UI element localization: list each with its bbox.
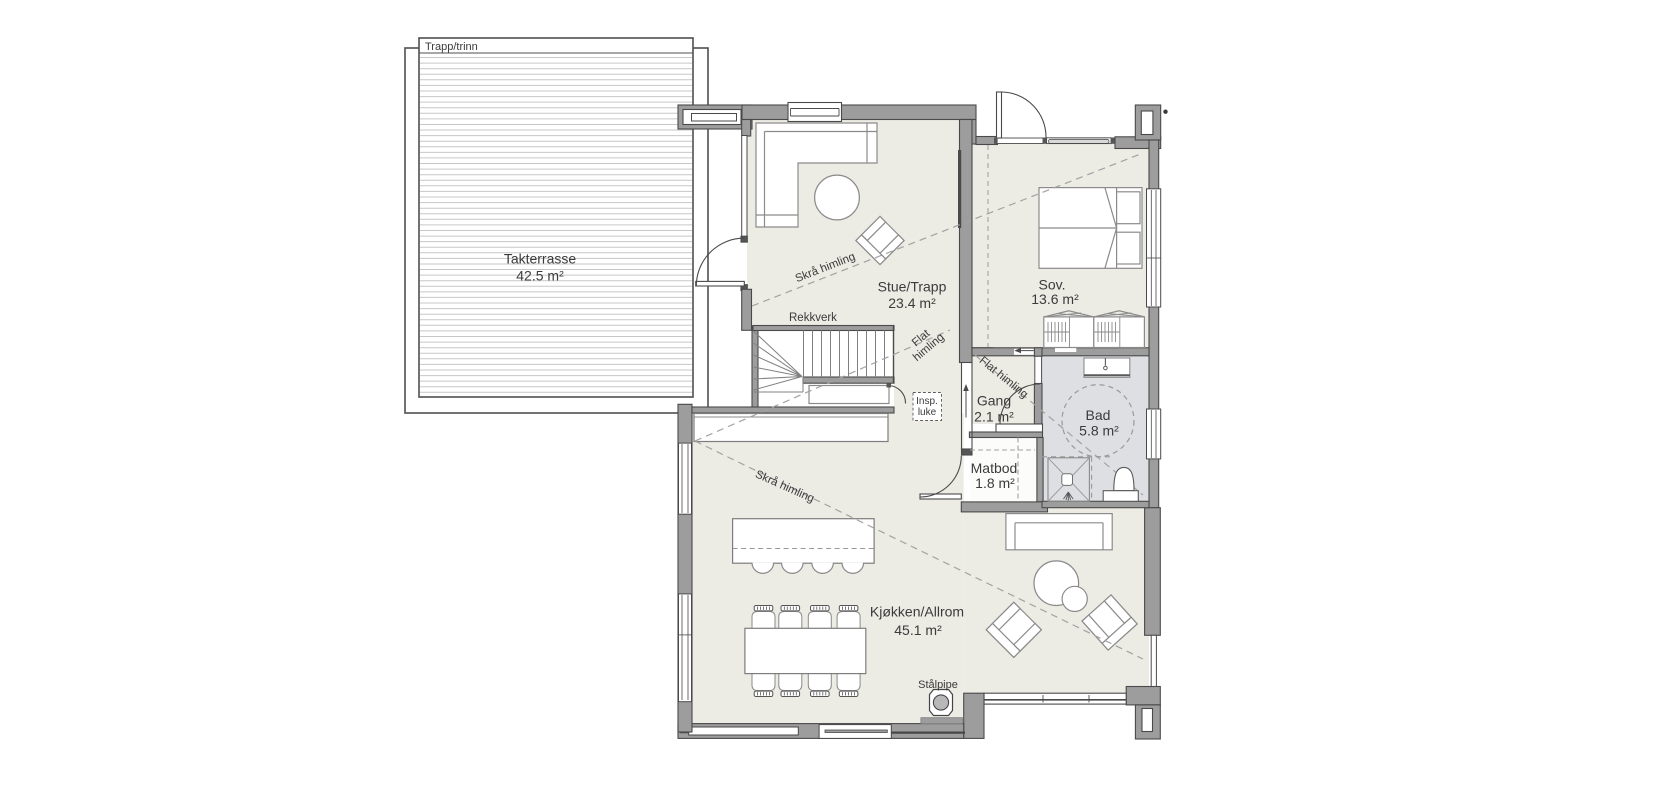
svg-text:Kjøkken/Allrom: Kjøkken/Allrom	[870, 604, 964, 620]
svg-text:Trapp/trinn: Trapp/trinn	[425, 41, 478, 53]
svg-text:2.1 m²: 2.1 m²	[974, 409, 1014, 425]
svg-text:13.6 m²: 13.6 m²	[1031, 291, 1079, 307]
svg-text:Stålpipe: Stålpipe	[918, 679, 958, 691]
svg-text:5.8 m²: 5.8 m²	[1079, 423, 1119, 439]
svg-text:Bad: Bad	[1086, 407, 1111, 423]
svg-text:Gang: Gang	[977, 393, 1011, 409]
svg-text:Insp.: Insp.	[916, 396, 938, 407]
svg-text:23.4 m²: 23.4 m²	[888, 295, 936, 311]
svg-text:42.5 m²: 42.5 m²	[516, 268, 564, 284]
svg-text:Rekkverk: Rekkverk	[789, 312, 837, 324]
svg-text:Stue/Trapp: Stue/Trapp	[878, 279, 947, 295]
svg-text:Matbod: Matbod	[971, 460, 1018, 476]
svg-text:45.1 m²: 45.1 m²	[894, 622, 942, 638]
svg-text:1.8 m²: 1.8 m²	[975, 475, 1015, 491]
svg-text:luke: luke	[918, 407, 937, 418]
svg-text:Takterrasse: Takterrasse	[504, 251, 577, 267]
